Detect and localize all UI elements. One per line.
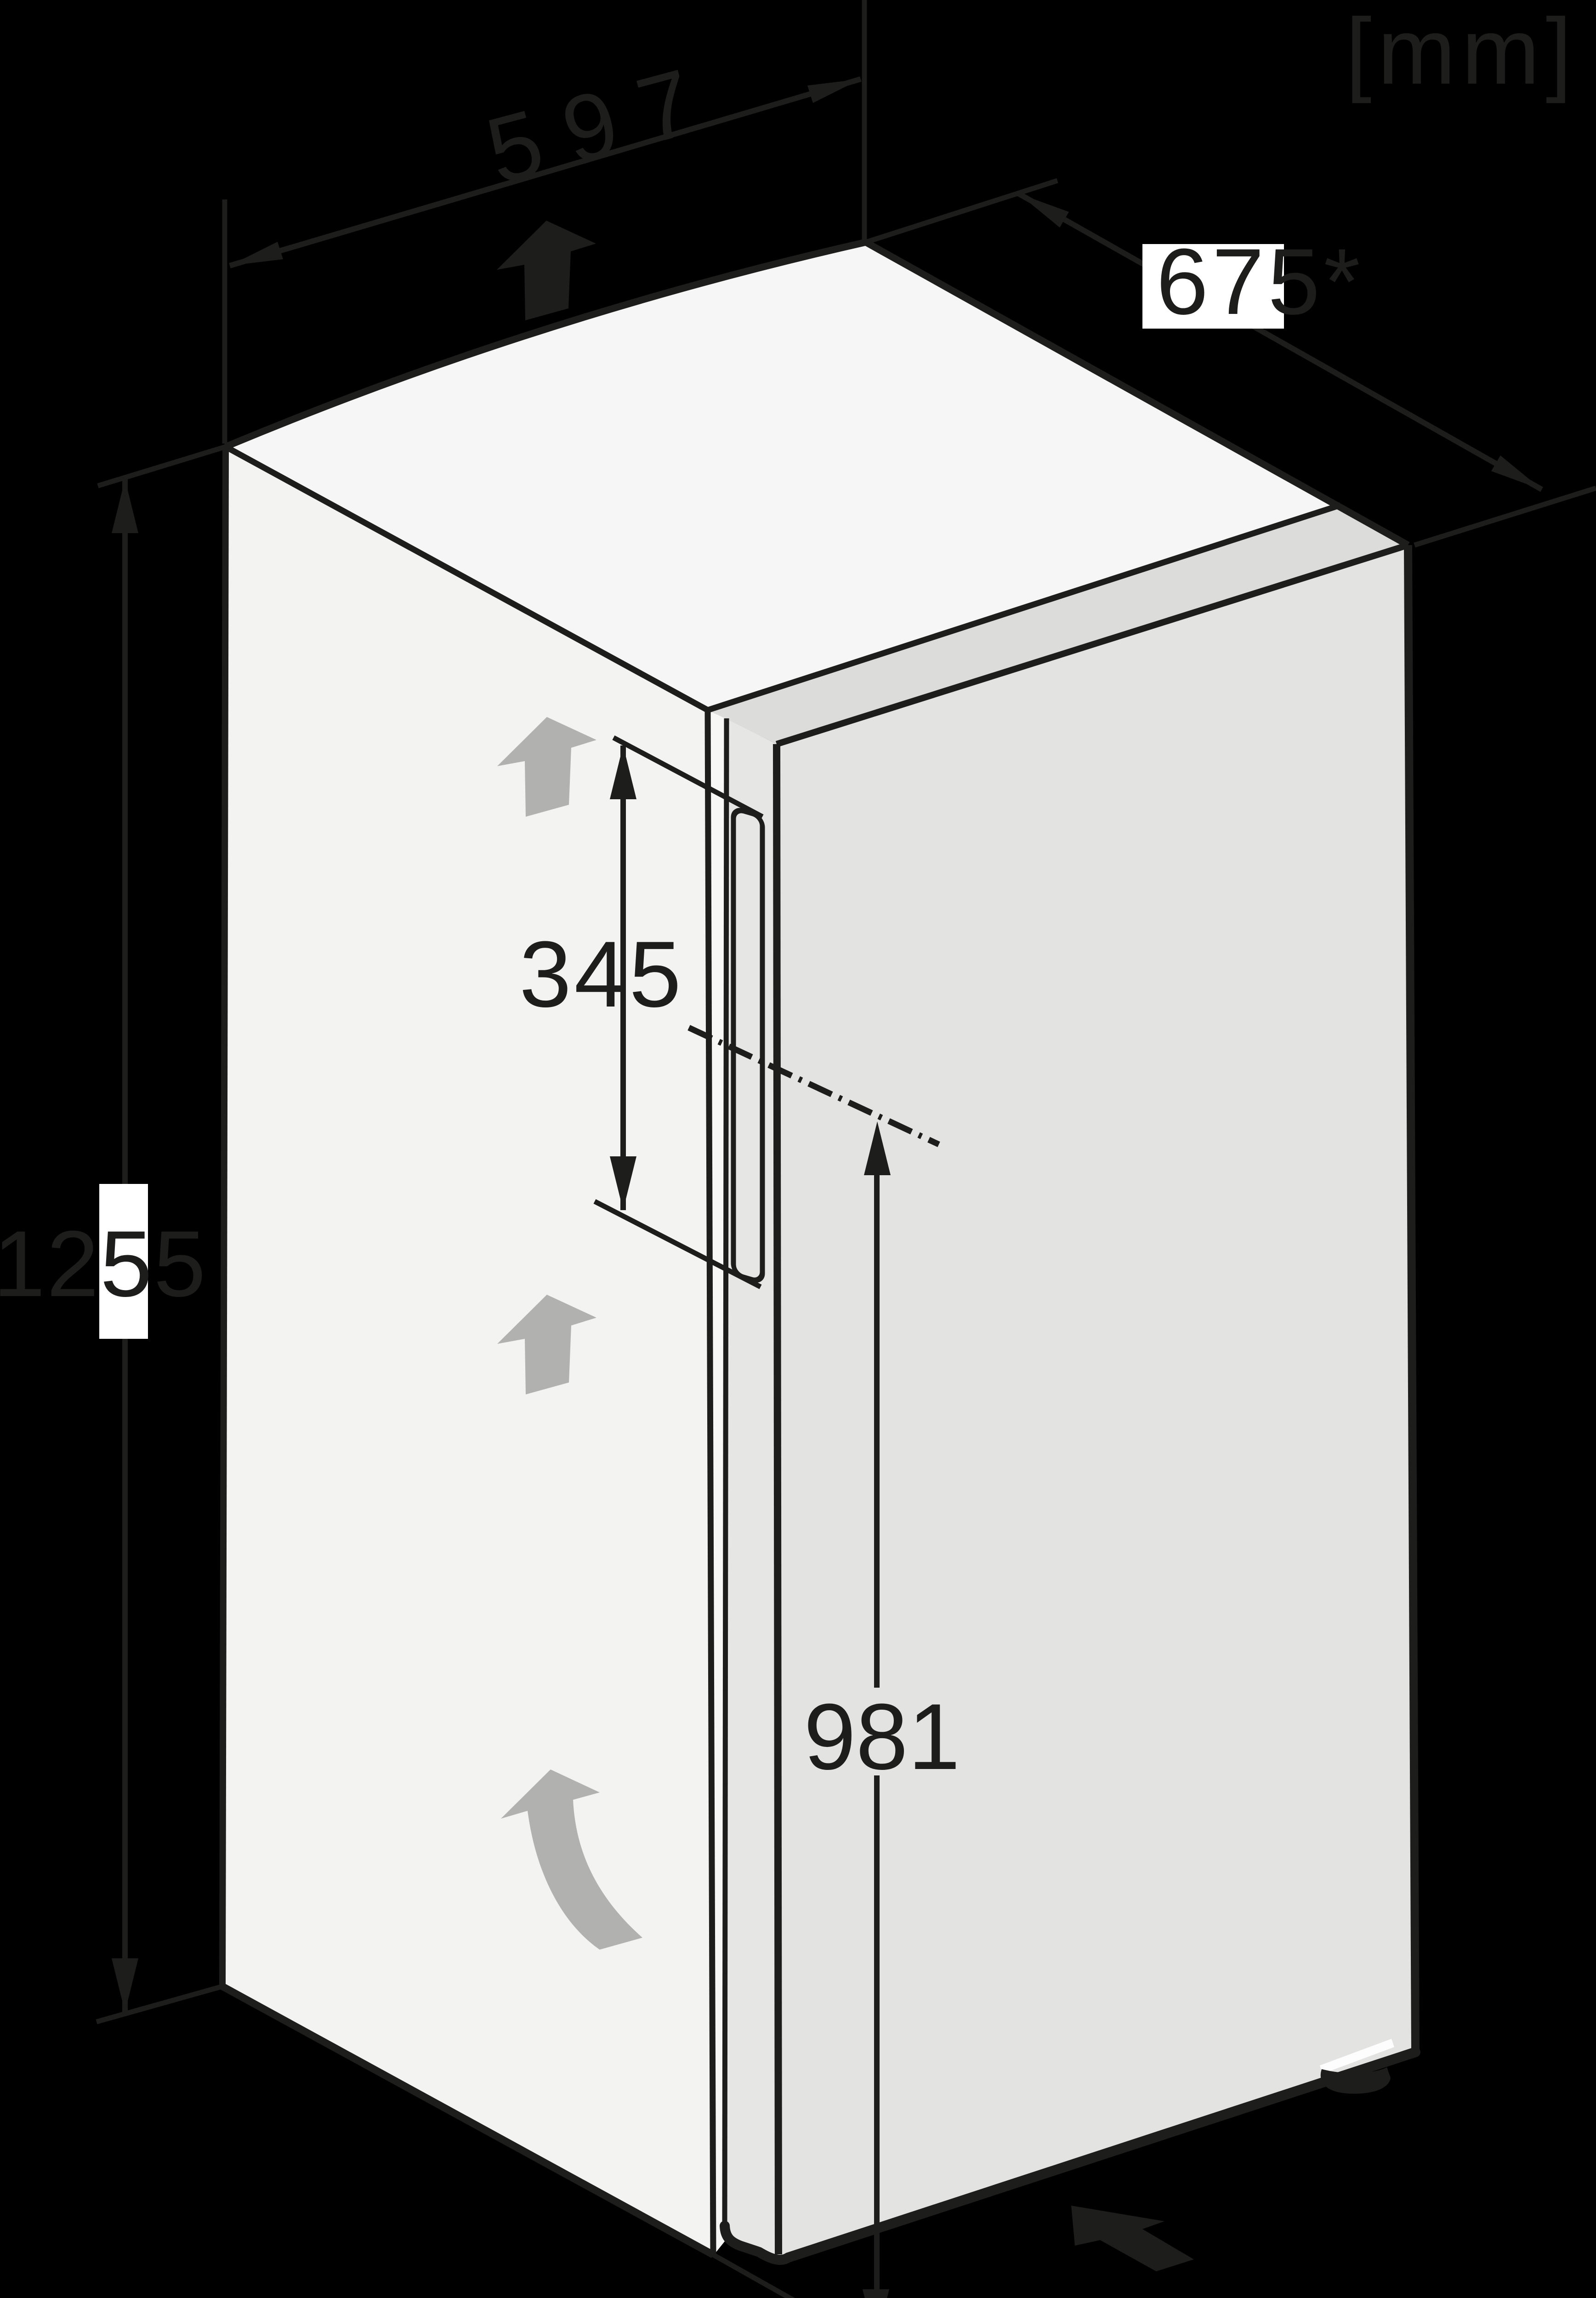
svg-text:345: 345 [519, 922, 684, 1027]
svg-text:981: 981 [804, 1684, 960, 1789]
svg-text:675*: 675* [1156, 229, 1364, 334]
svg-text:1255: 1255 [0, 1212, 207, 1316]
svg-text:[mm]: [mm] [1346, 0, 1578, 104]
